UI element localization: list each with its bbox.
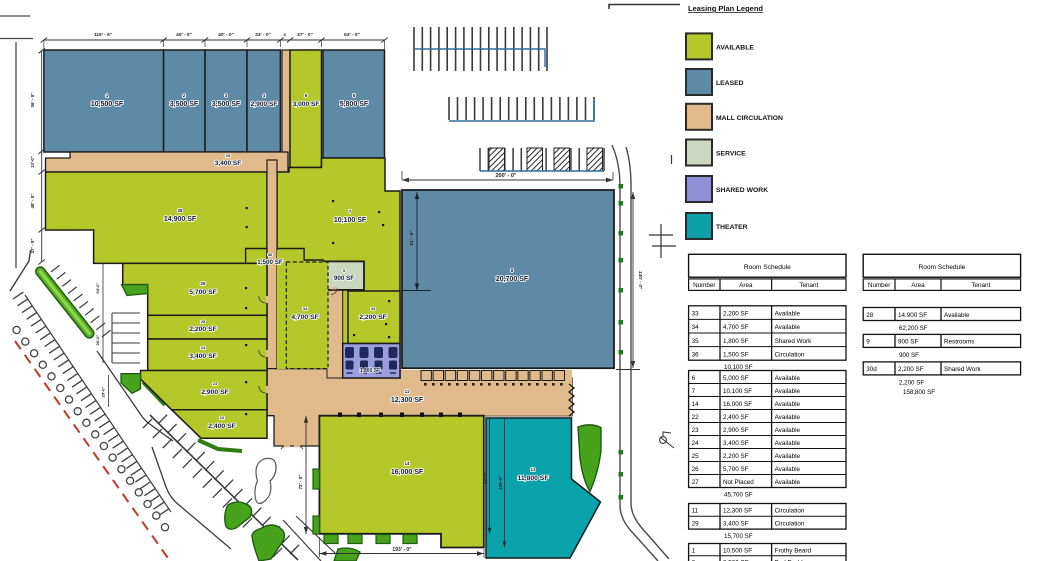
svg-text:10,100 SF: 10,100 SF: [723, 388, 752, 395]
svg-text:Available: Available: [775, 440, 801, 447]
svg-text:Leasing Plan Legend: Leasing Plan Legend: [688, 4, 763, 13]
svg-text:72' - 0": 72' - 0": [298, 474, 303, 489]
svg-text:9: 9: [866, 339, 870, 346]
svg-text:63' - 0": 63' - 0": [344, 32, 360, 38]
svg-text:7: 7: [692, 388, 696, 395]
svg-text:14: 14: [692, 401, 700, 408]
svg-text:Circulation: Circulation: [775, 508, 805, 515]
svg-text:26'-0": 26'-0": [95, 334, 100, 345]
svg-text:5,000 SF: 5,000 SF: [723, 375, 749, 382]
svg-text:5,800 SF: 5,800 SF: [340, 101, 369, 108]
svg-text:Room Schedule: Room Schedule: [918, 264, 965, 271]
svg-text:2,900 SF: 2,900 SF: [251, 101, 278, 108]
svg-text:12,300 SF: 12,300 SF: [391, 397, 424, 404]
svg-text:Available: Available: [944, 312, 970, 319]
svg-text:25: 25: [692, 453, 700, 460]
svg-text:10,500 SF: 10,500 SF: [91, 101, 124, 108]
svg-text:Number: Number: [693, 282, 715, 289]
svg-text:14,900 SF: 14,900 SF: [164, 216, 197, 223]
svg-text:Area: Area: [739, 282, 753, 289]
svg-text:Available: Available: [775, 401, 801, 408]
svg-text:2,900 SF: 2,900 SF: [723, 427, 749, 434]
svg-text:2,200 SF: 2,200 SF: [898, 366, 924, 373]
svg-text:40' - 0": 40' - 0": [218, 32, 234, 38]
svg-text:Frothy Beard: Frothy Beard: [775, 547, 812, 554]
svg-text:Circulation: Circulation: [775, 351, 805, 358]
svg-text:SHARED WORK: SHARED WORK: [716, 187, 768, 194]
svg-text:37' - 0": 37' - 0": [30, 238, 35, 253]
svg-text:3,500 SF: 3,500 SF: [170, 101, 199, 108]
svg-text:900 SF: 900 SF: [899, 352, 919, 359]
svg-text:THEATER: THEATER: [716, 224, 748, 231]
svg-text:30d: 30d: [866, 366, 877, 373]
svg-text:11: 11: [692, 508, 699, 515]
svg-text:158,800 SF: 158,800 SF: [903, 389, 935, 396]
svg-text:2,400 SF: 2,400 SF: [208, 423, 236, 430]
svg-text:1,800 SF: 1,800 SF: [360, 368, 380, 374]
svg-text:34: 34: [692, 324, 700, 331]
svg-text:3,000 SF: 3,000 SF: [293, 101, 320, 108]
svg-text:2,200 SF: 2,200 SF: [359, 314, 387, 321]
svg-text:28: 28: [177, 208, 183, 213]
svg-text:33: 33: [371, 306, 376, 311]
svg-text:SERVICE: SERVICE: [716, 151, 746, 158]
svg-text:Restrooms: Restrooms: [944, 339, 974, 346]
svg-text:14: 14: [404, 461, 410, 466]
svg-text:200' - 0": 200' - 0": [495, 173, 516, 179]
svg-text:24: 24: [692, 440, 700, 447]
svg-text:Tenant: Tenant: [971, 282, 990, 289]
svg-text:AVAILABLE: AVAILABLE: [716, 44, 754, 51]
svg-text:36: 36: [692, 351, 700, 358]
svg-text:MALL CIRCULATION: MALL CIRCULATION: [716, 115, 783, 122]
svg-text:58'-0": 58'-0": [483, 472, 488, 483]
svg-text:10'-0": 10'-0": [30, 156, 35, 167]
svg-text:26: 26: [200, 281, 206, 286]
svg-text:Area: Area: [911, 282, 925, 289]
svg-text:3,400 SF: 3,400 SF: [723, 521, 749, 528]
svg-text:900 SF: 900 SF: [898, 339, 918, 346]
svg-text:5,700 SF: 5,700 SF: [189, 289, 217, 296]
svg-text:Room Schedule: Room Schedule: [744, 264, 791, 271]
svg-text:1,500 SF: 1,500 SF: [257, 259, 283, 266]
svg-text:3,400 SF: 3,400 SF: [723, 440, 749, 447]
svg-text:193' - 0": 193' - 0": [392, 547, 412, 553]
svg-text:22: 22: [220, 415, 225, 420]
svg-text:22: 22: [692, 414, 700, 421]
svg-text:Tenant: Tenant: [799, 282, 818, 289]
svg-text:Available: Available: [775, 427, 801, 434]
svg-text:129'-0": 129'-0": [498, 476, 503, 490]
svg-text:5,700 SF: 5,700 SF: [723, 466, 749, 473]
svg-text:3,400 SF: 3,400 SF: [215, 160, 241, 167]
svg-text:Available: Available: [775, 375, 801, 382]
svg-text:23: 23: [692, 427, 700, 434]
svg-text:29: 29: [692, 521, 700, 528]
svg-text:2,400 SF: 2,400 SF: [723, 414, 749, 421]
svg-text:4,700 SF: 4,700 SF: [723, 324, 749, 331]
svg-text:10,100 SF: 10,100 SF: [334, 217, 367, 224]
svg-text:14,900 SF: 14,900 SF: [898, 312, 927, 319]
svg-text:29'-0": 29'-0": [101, 386, 106, 397]
svg-text:28: 28: [866, 312, 874, 319]
svg-text:140' - 0": 140' - 0": [637, 271, 643, 289]
svg-text:40' - 0": 40' - 0": [176, 32, 192, 38]
svg-text:20,700 SF: 20,700 SF: [496, 276, 529, 283]
svg-text:45,700 SF: 45,700 SF: [724, 492, 753, 499]
svg-text:Available: Available: [775, 414, 801, 421]
svg-text:2,900 SF: 2,900 SF: [201, 389, 229, 396]
svg-text:LEASED: LEASED: [716, 80, 744, 87]
svg-text:Number: Number: [868, 282, 890, 289]
svg-text:48' - 0": 48' - 0": [30, 193, 35, 208]
svg-text:27: 27: [692, 479, 700, 486]
svg-text:23: 23: [213, 381, 218, 386]
svg-text:37' - 0": 37' - 0": [297, 32, 313, 38]
svg-text:1,500 SF: 1,500 SF: [723, 351, 749, 358]
svg-text:36' - 0": 36' - 0": [30, 92, 35, 107]
svg-text:26: 26: [692, 466, 700, 473]
svg-text:62,200 SF: 62,200 SF: [899, 325, 928, 332]
svg-text:11: 11: [405, 389, 410, 394]
svg-text:900 SF: 900 SF: [334, 275, 354, 282]
svg-text:2,200 SF: 2,200 SF: [723, 311, 749, 318]
svg-text:Available: Available: [775, 388, 801, 395]
svg-text:3,500 SF: 3,500 SF: [212, 101, 241, 108]
svg-text:25: 25: [201, 319, 206, 324]
svg-text:Available: Available: [775, 466, 801, 473]
svg-text:2,200 SF: 2,200 SF: [899, 379, 924, 386]
svg-text:Available: Available: [775, 311, 801, 318]
svg-text:1: 1: [692, 547, 696, 554]
svg-text:35: 35: [692, 338, 700, 345]
svg-text:1,800 SF: 1,800 SF: [723, 338, 749, 345]
svg-text:6: 6: [692, 375, 696, 382]
svg-text:119' - 6": 119' - 6": [94, 32, 112, 38]
svg-text:33: 33: [692, 311, 700, 318]
svg-text:61' - 6": 61' - 6": [409, 230, 414, 245]
svg-text:16,000 SF: 16,000 SF: [723, 401, 752, 408]
svg-text:2,200 SF: 2,200 SF: [189, 326, 217, 333]
svg-text:36: 36: [268, 252, 273, 257]
svg-text:Available: Available: [775, 453, 801, 460]
svg-text:Not Placed: Not Placed: [723, 479, 754, 486]
svg-text:13: 13: [530, 467, 536, 472]
svg-text:16,000 SF: 16,000 SF: [391, 469, 424, 476]
svg-text:64'-0": 64'-0": [95, 282, 100, 293]
svg-text:34: 34: [303, 306, 308, 311]
svg-text:10,500 SF: 10,500 SF: [723, 547, 752, 554]
svg-text:2,200 SF: 2,200 SF: [723, 453, 749, 460]
svg-text:8': 8': [284, 33, 287, 37]
svg-text:Available: Available: [775, 479, 801, 486]
svg-text:12,300 SF: 12,300 SF: [723, 508, 752, 515]
svg-text:33' - 0": 33' - 0": [255, 32, 271, 38]
svg-text:Shared Work: Shared Work: [775, 338, 812, 345]
svg-text:3,400 SF: 3,400 SF: [189, 353, 217, 360]
svg-text:15,700 SF: 15,700 SF: [724, 533, 753, 540]
svg-text:Shared Work: Shared Work: [944, 366, 981, 373]
svg-text:Circulation: Circulation: [775, 521, 805, 528]
svg-text:24: 24: [201, 345, 206, 350]
svg-text:11,800 SF: 11,800 SF: [518, 475, 549, 482]
svg-text:4,700 SF: 4,700 SF: [291, 314, 319, 321]
svg-text:29: 29: [226, 153, 231, 158]
svg-text:Available: Available: [775, 324, 801, 331]
